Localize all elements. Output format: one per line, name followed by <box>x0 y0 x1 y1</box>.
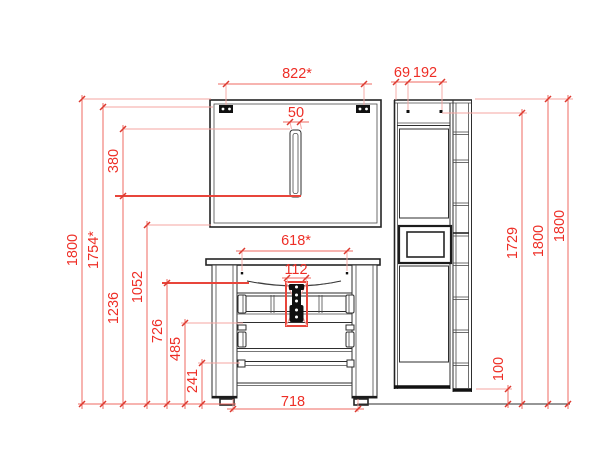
dim-tall-spacing-label: 192 <box>413 65 437 81</box>
mirror-bracket-right <box>356 105 370 113</box>
dim-basin-rim-height-label: 726 <box>150 319 166 343</box>
tall-shelf-column <box>453 100 472 392</box>
dim-tall-height-b-label: 1800 <box>552 210 568 242</box>
dim-tall-hardware-height: 1729 <box>442 109 527 409</box>
dim-bottom-rail-height-label: 241 <box>185 369 201 393</box>
dim-overall-height-left-label: 1800 <box>65 234 81 266</box>
dim-mirror-top-height-label: 1754* <box>86 231 102 269</box>
tall-lower-door <box>400 266 449 362</box>
dim-handle-height-label: 380 <box>106 149 122 173</box>
elevation-drawing: 822* 50 69 192 <box>0 0 600 455</box>
dim-vanity-width-label: 718 <box>281 394 305 410</box>
dim-tall-hardware-height-label: 1729 <box>505 227 521 259</box>
vanity-side-panel-right <box>352 265 377 405</box>
dim-tall-offset-label: 69 <box>394 65 410 81</box>
hardware-dot-left <box>407 110 410 113</box>
dim-handle-bottom-height-label: 1236 <box>106 292 122 324</box>
dim-vanity-width: 718 <box>227 394 364 412</box>
dim-tall-floor-gap: 100 <box>476 357 512 408</box>
dim-mirror-width: 822* <box>218 66 372 105</box>
drain-highlight-box <box>286 282 307 326</box>
shelf-divisions <box>453 132 469 366</box>
drain-siphon <box>289 284 304 322</box>
vanity-cabinet <box>206 259 380 405</box>
dim-drawer-divider-height-label: 485 <box>168 337 184 361</box>
tall-upper-door <box>400 129 449 218</box>
dim-mirror-width-label: 822* <box>282 66 312 82</box>
dim-basin-width-label: 618* <box>281 233 311 249</box>
technical-drawing-page: 822* 50 69 192 <box>0 0 600 455</box>
dim-mirror-bottom-height-label: 1052 <box>130 271 146 303</box>
vanity-side-panel-left <box>212 265 237 405</box>
dim-tall-height-a-label: 1800 <box>531 225 547 257</box>
dim-handle-width-label: 50 <box>288 105 304 121</box>
bottom-rail <box>238 360 354 367</box>
tall-cabinet <box>394 100 472 392</box>
dim-drain-width-label: 112 <box>284 262 307 278</box>
dim-drain-width: 112 <box>282 262 311 283</box>
mirror-handle <box>290 130 301 197</box>
dim-tall-heights-right: 1800 1800 <box>475 95 573 409</box>
dim-tall-floor-gap-label: 100 <box>491 357 507 381</box>
second-drawer <box>237 325 354 352</box>
mirror-bracket-left <box>219 105 233 113</box>
